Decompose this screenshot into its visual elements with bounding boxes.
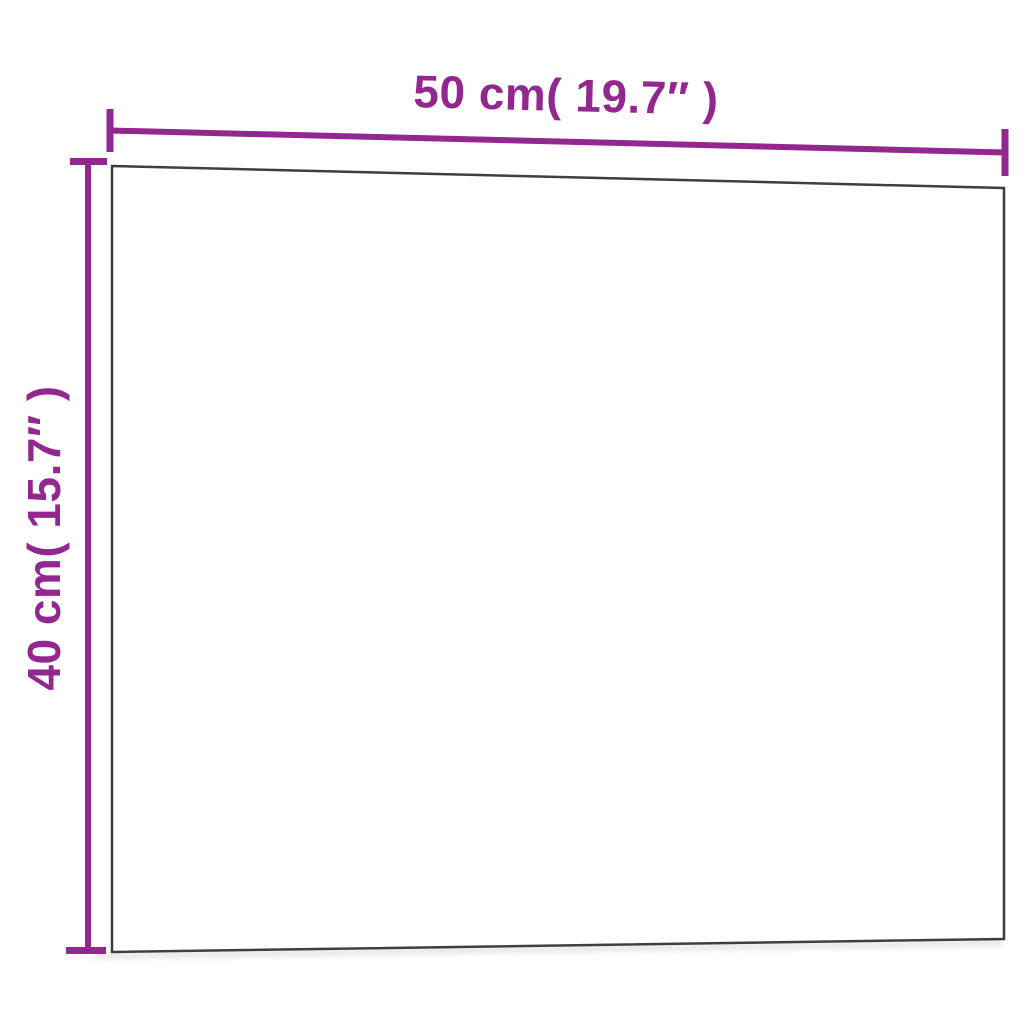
diagram-canvas xyxy=(0,0,1024,1024)
board-outline xyxy=(112,166,1004,952)
width-dimension-label: 50 cm( 19.7″ ) xyxy=(365,61,766,129)
height-dimension-label: 40 cm( 15.7″ ) xyxy=(15,328,73,748)
dimension-diagram: 50 cm( 19.7″ ) 40 cm( 15.7″ ) xyxy=(0,0,1024,1024)
width-dimension-line xyxy=(110,131,1005,153)
